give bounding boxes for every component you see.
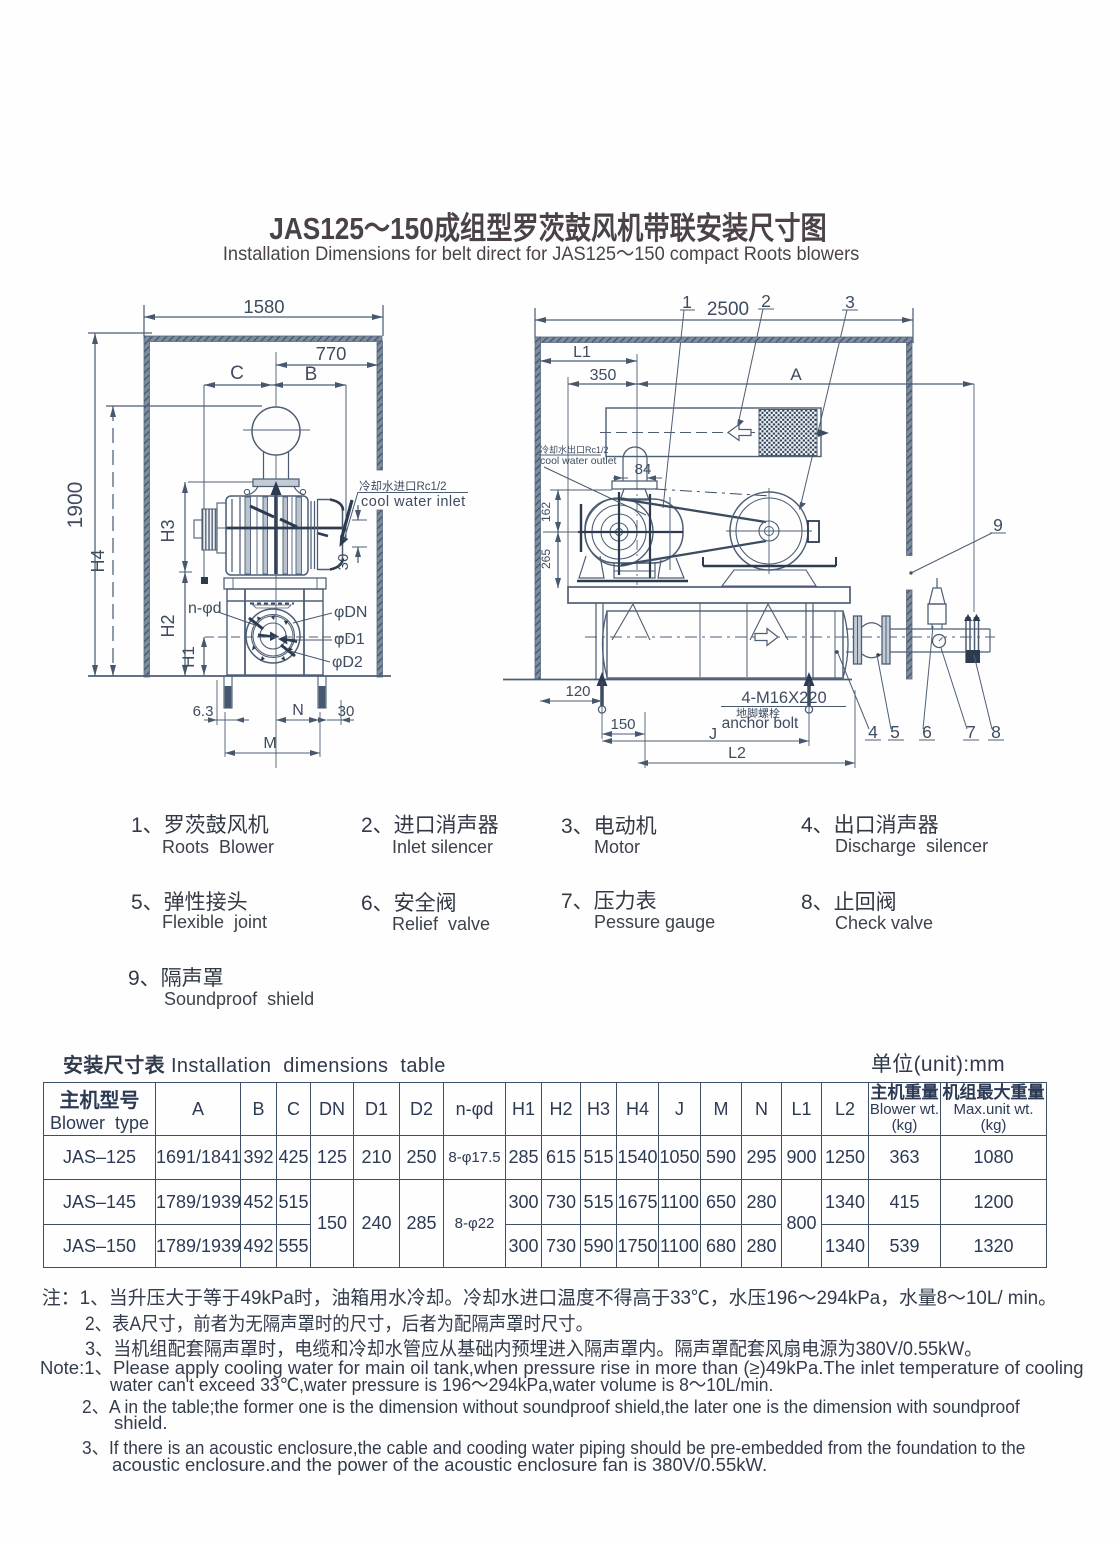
svg-text:162: 162 xyxy=(539,502,553,522)
svg-text:cool water outlet: cool water outlet xyxy=(540,455,617,467)
svg-text:A: A xyxy=(790,365,802,384)
svg-text:8: 8 xyxy=(991,722,1001,742)
svg-text:7: 7 xyxy=(966,722,976,742)
svg-text:M: M xyxy=(263,735,276,752)
svg-text:3: 3 xyxy=(845,292,855,312)
svg-text:H2: H2 xyxy=(158,614,178,637)
svg-text:冷却水进口Rc1/2: 冷却水进口Rc1/2 xyxy=(359,480,447,493)
svg-text:1: 1 xyxy=(682,292,692,312)
svg-text:1900: 1900 xyxy=(64,482,87,529)
svg-text:4: 4 xyxy=(868,722,878,742)
svg-text:H3: H3 xyxy=(158,519,178,542)
svg-text:H1: H1 xyxy=(179,646,198,668)
svg-text:L2: L2 xyxy=(728,745,746,762)
svg-text:265: 265 xyxy=(539,549,553,569)
svg-text:120: 120 xyxy=(565,683,590,700)
svg-text:350: 350 xyxy=(590,367,617,384)
svg-text:anchor bolt: anchor bolt xyxy=(722,715,799,732)
svg-text:B: B xyxy=(305,364,318,385)
svg-text:H4: H4 xyxy=(88,549,108,572)
svg-text:30: 30 xyxy=(335,554,352,571)
svg-text:φD2: φD2 xyxy=(332,654,363,671)
svg-text:φDN: φDN xyxy=(334,604,367,621)
svg-text:cool water inlet: cool water inlet xyxy=(361,494,466,510)
svg-text:30: 30 xyxy=(338,703,355,720)
svg-text:n-φd: n-φd xyxy=(188,600,222,617)
svg-text:5: 5 xyxy=(890,722,900,742)
svg-text:冷却水出口Rc1/2: 冷却水出口Rc1/2 xyxy=(540,444,609,455)
svg-text:N: N xyxy=(292,702,304,719)
svg-text:84: 84 xyxy=(635,461,652,478)
svg-text:6.3: 6.3 xyxy=(193,703,214,720)
svg-text:150: 150 xyxy=(610,716,635,733)
svg-text:2: 2 xyxy=(761,291,771,311)
svg-text:φD1: φD1 xyxy=(334,631,365,648)
svg-text:L1: L1 xyxy=(573,344,591,361)
svg-text:J: J xyxy=(709,726,717,743)
svg-text:770: 770 xyxy=(316,343,347,364)
svg-text:4-M16X220: 4-M16X220 xyxy=(741,689,826,707)
svg-text:1580: 1580 xyxy=(243,296,284,317)
svg-text:C: C xyxy=(230,363,244,384)
svg-text:9: 9 xyxy=(993,515,1003,535)
svg-text:2500: 2500 xyxy=(707,299,749,320)
